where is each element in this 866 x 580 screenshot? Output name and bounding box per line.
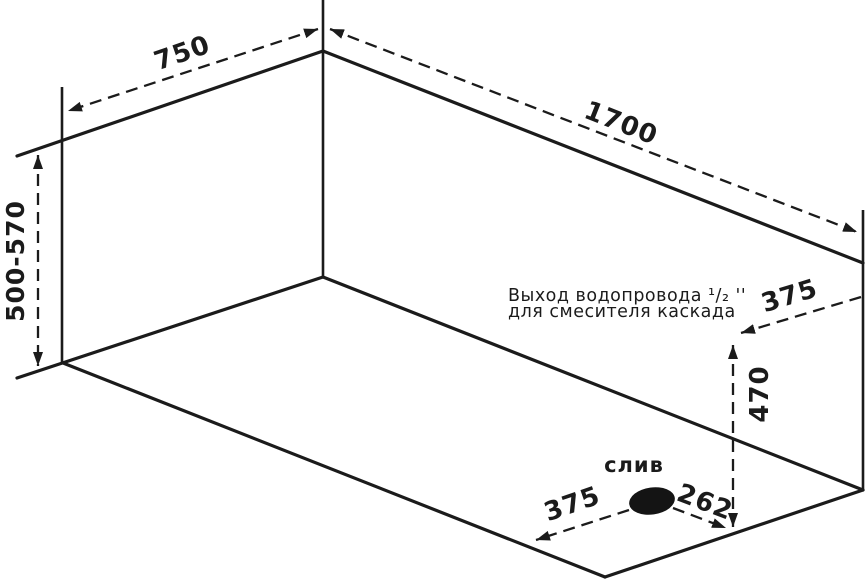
dim-label-750: 750 [150, 30, 214, 77]
dim-label-470: 470 [745, 365, 775, 422]
dim-label-375-drain: 375 [540, 481, 604, 528]
dim-label-375-outlet: 375 [758, 274, 822, 319]
bathtub-dimension-diagram: 750 1700 500-570 375 470 375 262 слив Вы… [0, 0, 866, 580]
dim-label-500-570: 500-570 [1, 200, 30, 322]
outlet-note-line2: для смесителя каскада [508, 302, 736, 322]
rim-edge-right [323, 51, 863, 263]
dim-label-1700: 1700 [580, 96, 662, 152]
floor-edge-front-left [63, 363, 605, 577]
drain-label: слив [604, 453, 664, 477]
dim-line-1700 [330, 29, 857, 232]
diagram-svg: 750 1700 500-570 375 470 375 262 слив Вы… [0, 0, 866, 580]
drain-hole [627, 484, 676, 517]
dim-label-262-drain: 262 [673, 478, 737, 527]
dimension-labels: 750 1700 500-570 375 470 375 262 слив Вы… [1, 30, 821, 528]
